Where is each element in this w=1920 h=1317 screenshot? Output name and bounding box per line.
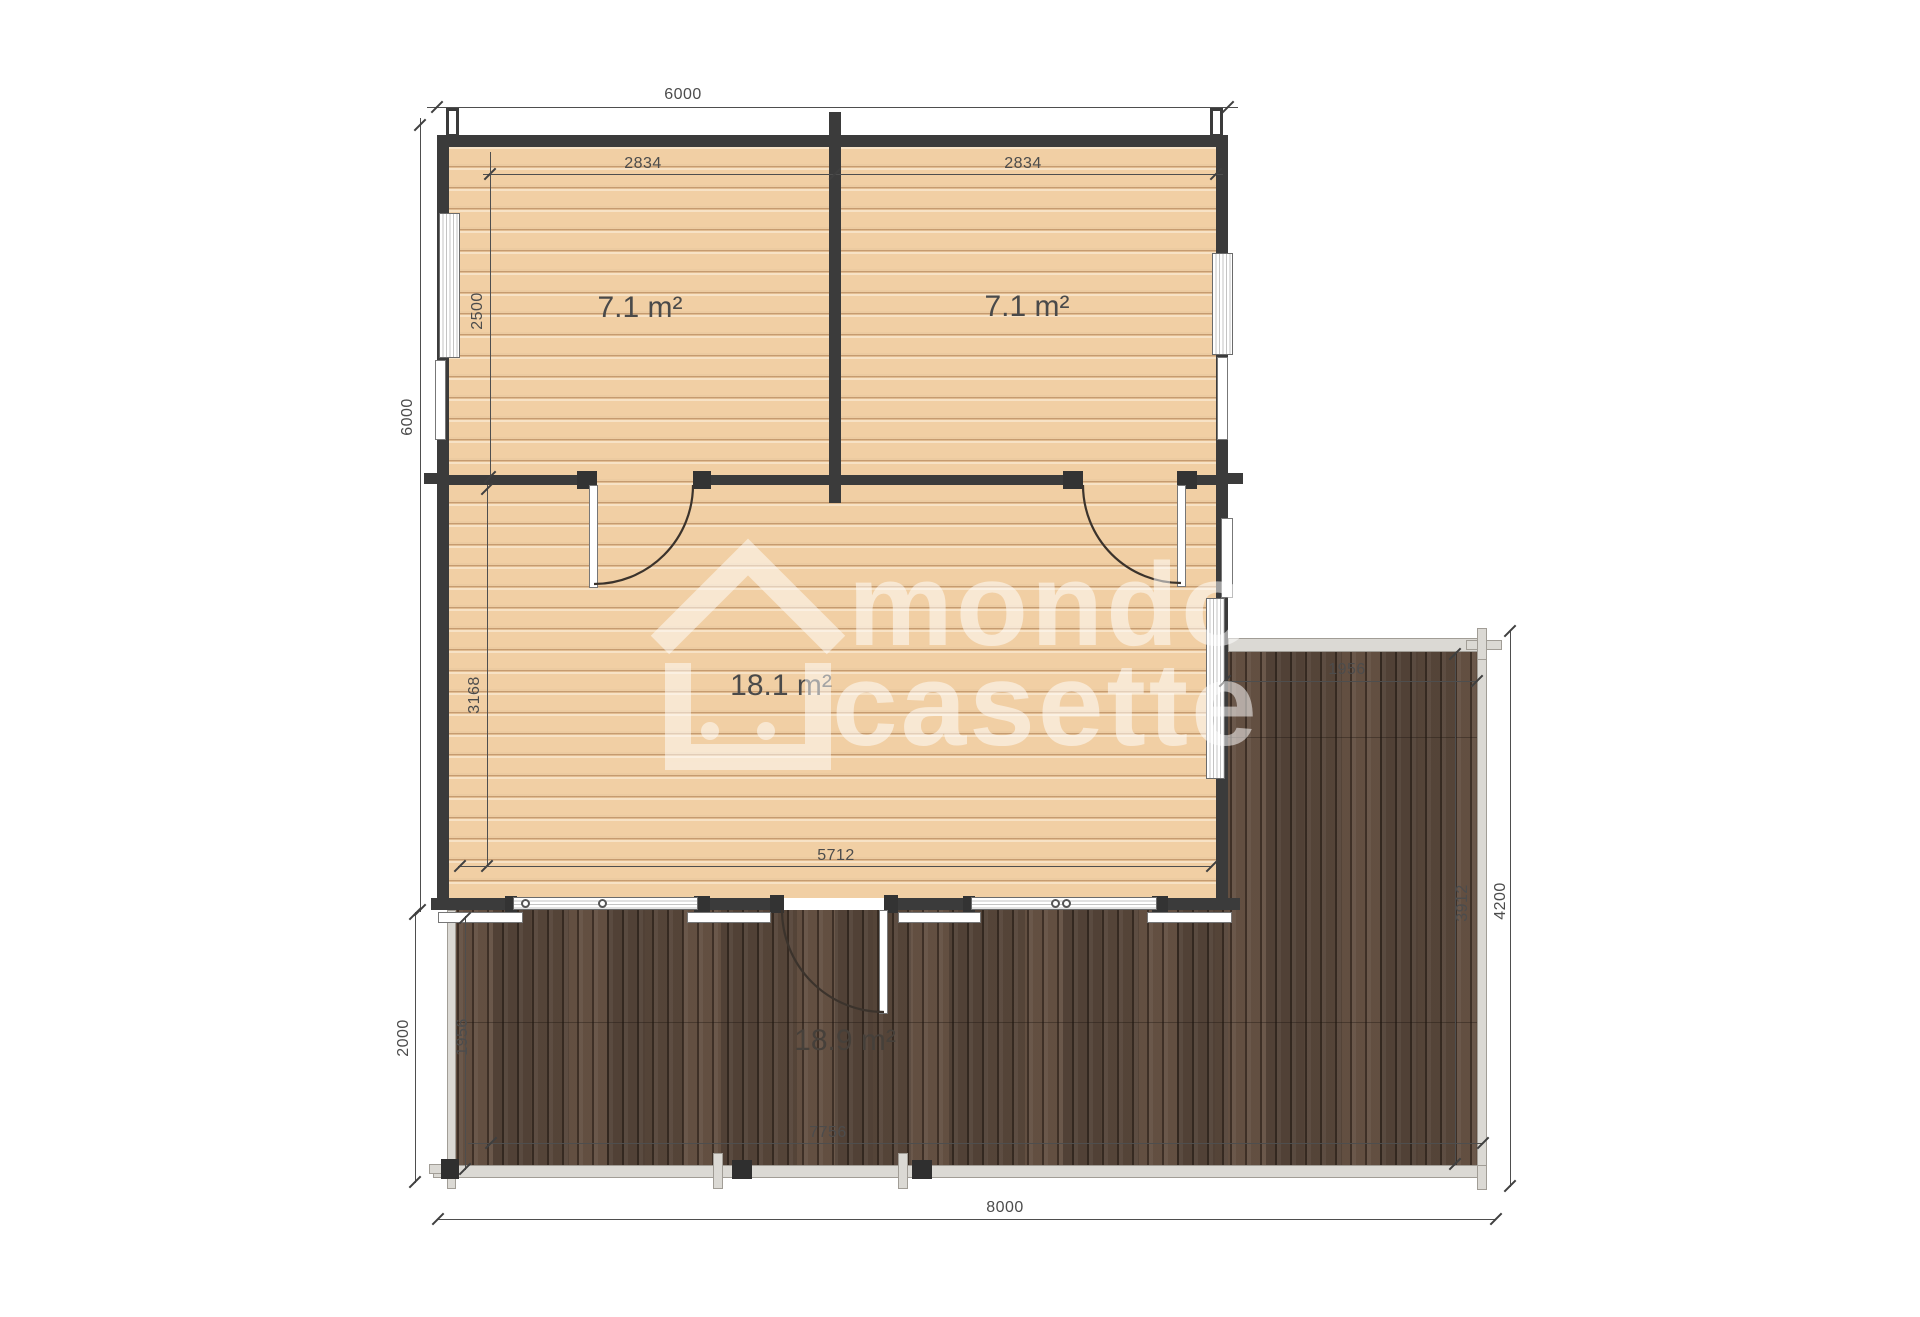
- floor-plan: 6000 6000 2834 2834 2500 3168 5712 1956 …: [0, 0, 1920, 1317]
- area-label-terrace: 18.9 m²: [794, 1024, 896, 1058]
- dim-label-front-depth-inner: 1956: [454, 1018, 472, 1056]
- dim-label-left-height: 6000: [399, 398, 417, 436]
- dim-line: [420, 118, 421, 912]
- dim-label-front-width-inner: 7756: [809, 1124, 847, 1142]
- dim-line: [427, 107, 1238, 108]
- dim-line: [468, 1143, 1483, 1144]
- dim-label-top-width: 6000: [664, 86, 702, 104]
- dim-line: [437, 1219, 1496, 1220]
- dim-line: [487, 485, 488, 866]
- area-label-room-main: 18.1 m²: [730, 669, 832, 703]
- dim-label-main-height: 3168: [466, 676, 484, 714]
- area-label-room-top-left: 7.1 m²: [597, 291, 682, 325]
- dim-line: [1223, 681, 1477, 682]
- area-label-room-top-right: 7.1 m²: [984, 290, 1069, 324]
- dim-label-main-width: 5712: [817, 847, 855, 865]
- door-swing-arcs: [0, 0, 1920, 1317]
- dim-line: [458, 866, 1212, 867]
- dim-label-room-tl-width: 2834: [624, 155, 662, 173]
- dim-label-total-width: 8000: [986, 1199, 1024, 1217]
- dim-label-front-depth: 2000: [395, 1019, 413, 1057]
- dim-label-room-tl-height: 2500: [469, 292, 487, 330]
- dim-label-terrace-right-width: 1956: [1328, 661, 1366, 679]
- dim-line: [1510, 630, 1511, 1187]
- dim-label-room-tr-width: 2834: [1004, 155, 1042, 173]
- dim-line: [490, 152, 491, 477]
- dim-label-terrace-right-length: 3912: [1454, 884, 1472, 922]
- dim-line: [483, 174, 1223, 175]
- dim-line: [415, 912, 416, 1183]
- dim-label-terrace-right-total: 4200: [1492, 882, 1510, 920]
